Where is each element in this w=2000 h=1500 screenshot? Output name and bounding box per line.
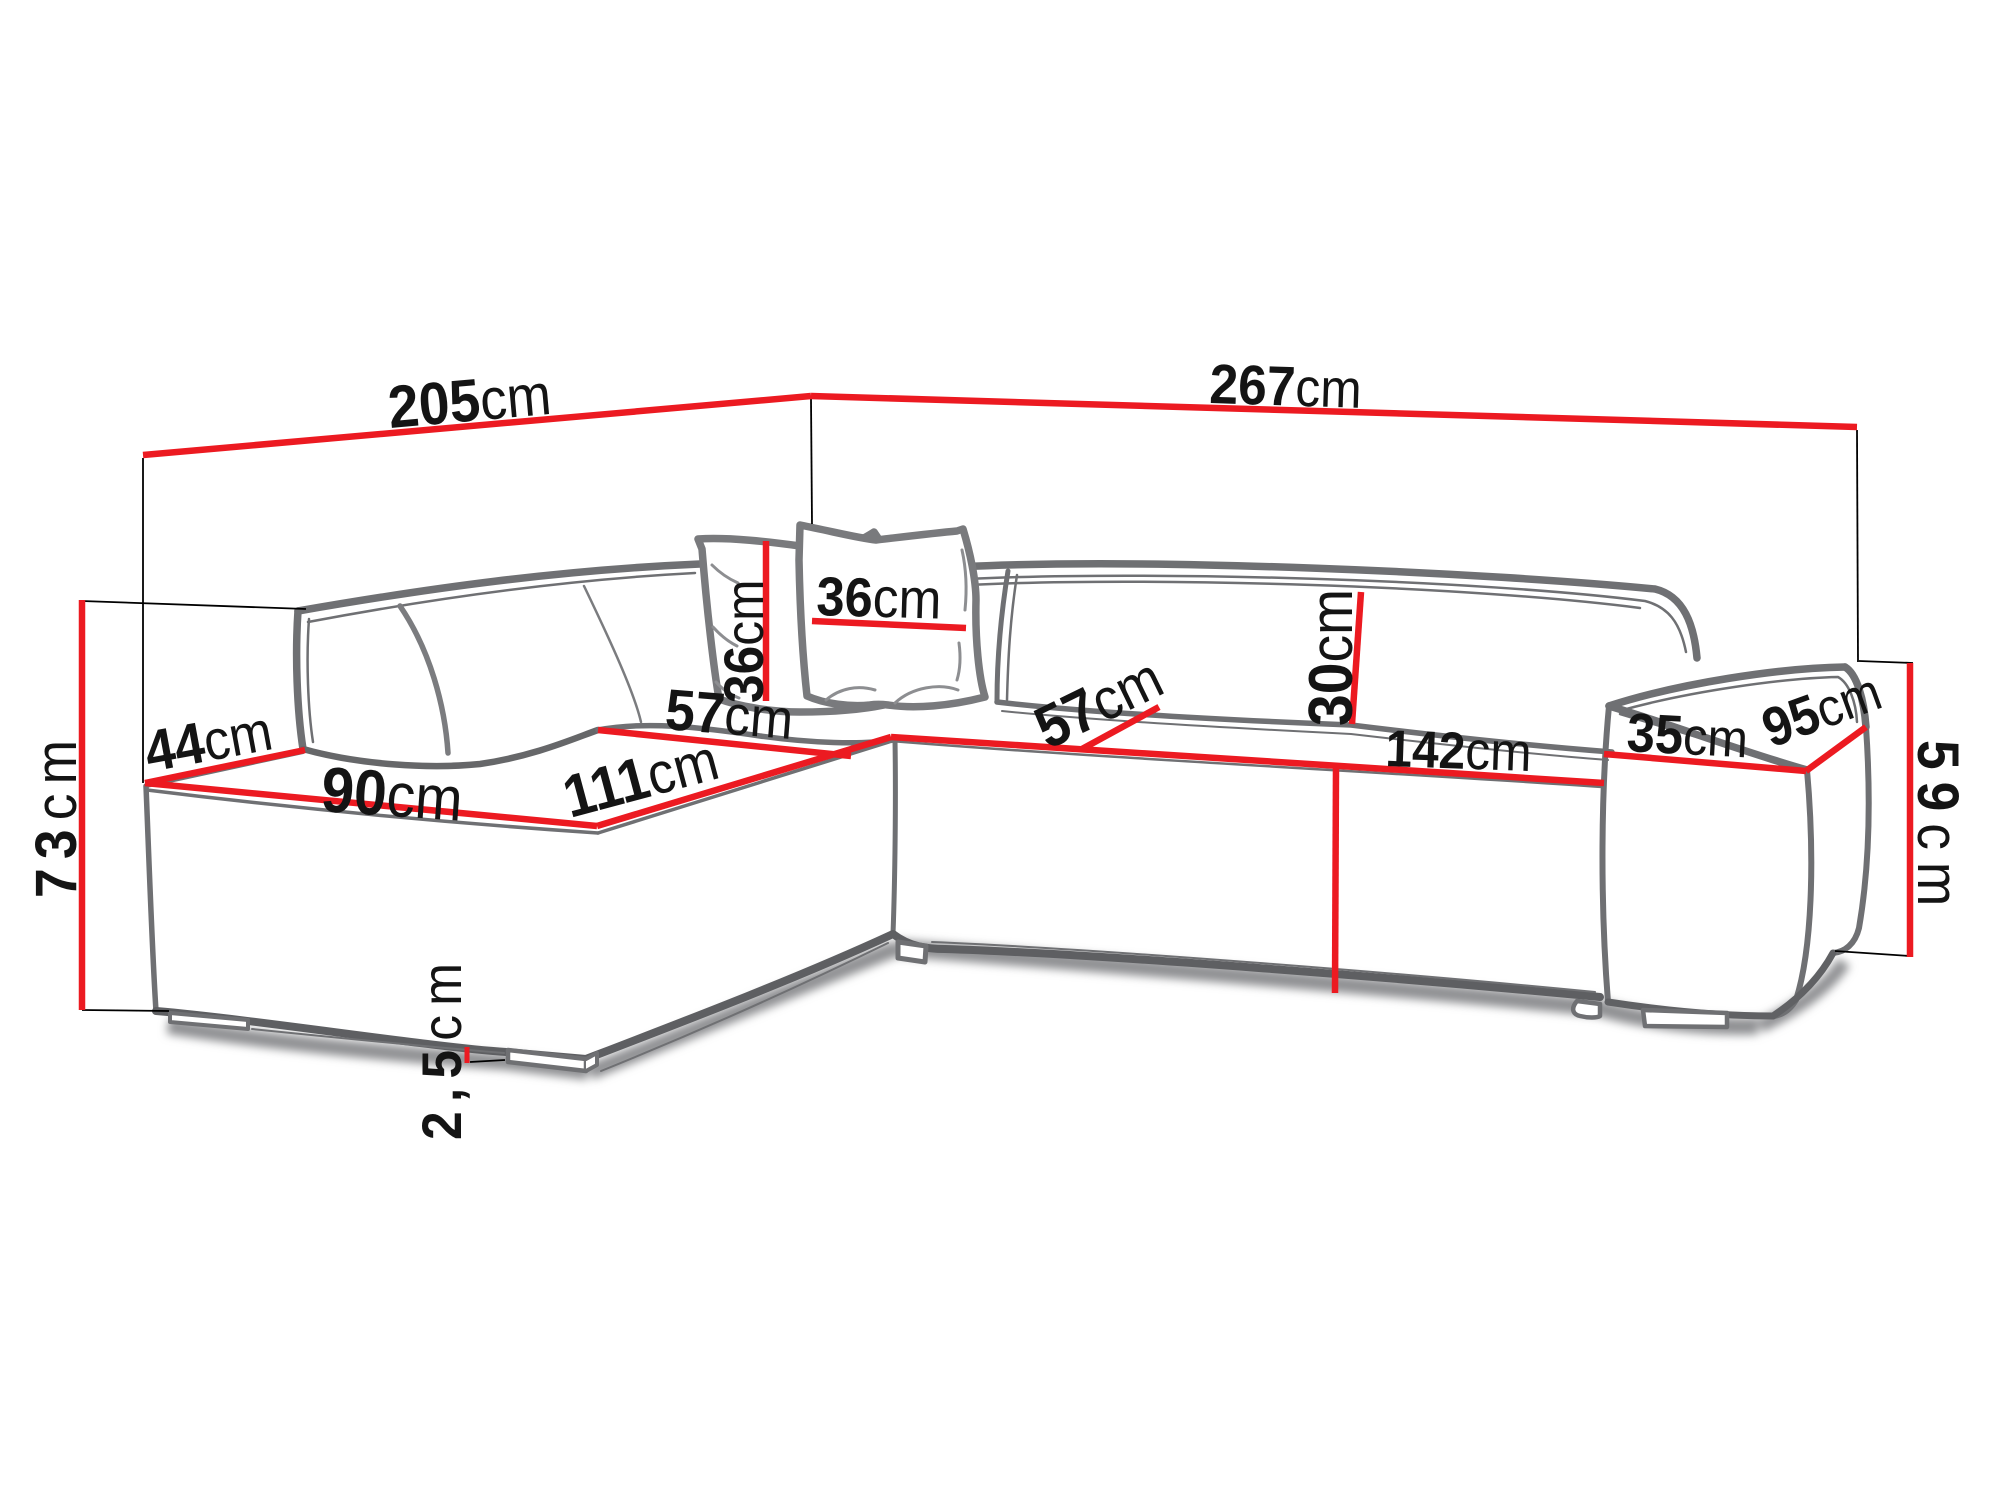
svg-text:73cm: 73cm <box>24 731 89 898</box>
svg-text:142cm: 142cm <box>1385 717 1533 782</box>
svg-text:36cm: 36cm <box>816 565 943 631</box>
svg-text:267cm: 267cm <box>1209 353 1363 420</box>
svg-text:2,5cm: 2,5cm <box>411 954 473 1140</box>
svg-text:59cm: 59cm <box>1906 740 1971 918</box>
svg-text:30cm: 30cm <box>1296 589 1366 726</box>
svg-text:90cm: 90cm <box>319 754 465 836</box>
svg-text:35cm: 35cm <box>1625 702 1749 770</box>
svg-text:36cm: 36cm <box>713 579 775 703</box>
